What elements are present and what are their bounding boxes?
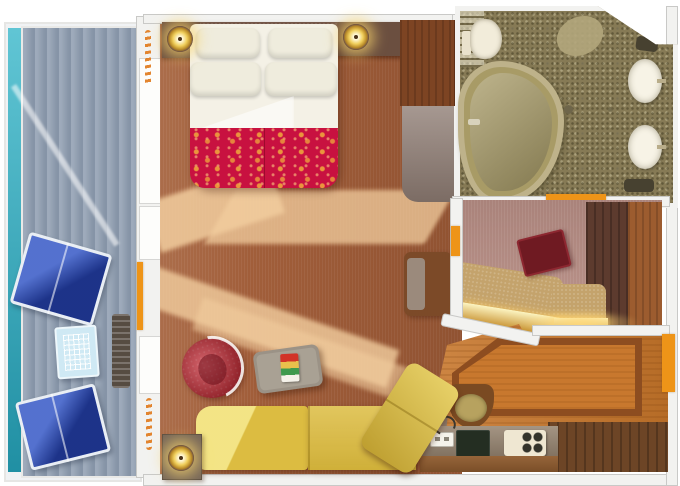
bench-cushion: [407, 258, 425, 310]
bathtub: [458, 61, 564, 203]
tub-faucet: [468, 119, 480, 125]
bath-rug: [550, 9, 610, 64]
pillow: [268, 28, 332, 58]
dressing-wall: [450, 198, 463, 322]
window-panel-lower: [139, 336, 161, 394]
sofa-seat-left: [196, 406, 308, 470]
vanity-sink-lower: [628, 125, 662, 169]
pillow: [265, 62, 337, 96]
magazine: [280, 353, 299, 382]
end-table-lamp-icon: [168, 445, 194, 471]
balcony-door: [137, 262, 143, 330]
toilet: [470, 19, 502, 59]
espresso-cup-dots: [522, 432, 544, 454]
foyer-wall: [532, 325, 670, 336]
bottom-wall: [143, 474, 678, 486]
dressing-door: [451, 226, 460, 256]
bed-foot-runner: [190, 128, 338, 188]
bedside-lamp-icon: [343, 24, 369, 50]
bar-basin: [455, 394, 487, 422]
floor-drain: [608, 107, 613, 112]
bath-mat: [635, 36, 659, 53]
balcony-glass-table: [54, 325, 100, 380]
balcony-deck-chair: [112, 314, 130, 388]
pillow: [196, 28, 260, 58]
vanity-sink-upper: [628, 59, 662, 103]
floor-drain: [564, 105, 573, 114]
wardrobe: [400, 20, 457, 106]
espresso-machine: [504, 430, 546, 456]
suite-floor-plan: [0, 0, 680, 486]
king-bed: [190, 24, 338, 188]
foyer-dark-wood: [548, 422, 668, 472]
decor-squiggle: [145, 30, 151, 86]
bedside-lamp-icon: [167, 26, 193, 52]
bathroom: [455, 6, 678, 208]
cooktop: [456, 430, 490, 458]
decor-squiggle: [146, 398, 152, 450]
dresser: [402, 106, 454, 202]
duvet-highlight: [190, 96, 294, 132]
entry-door: [662, 334, 675, 392]
pillow: [190, 62, 261, 96]
wall-bench: [404, 252, 452, 316]
window-panel-middle: [139, 206, 161, 260]
counter-wood-front: [420, 456, 558, 472]
bath-mat: [624, 179, 654, 192]
